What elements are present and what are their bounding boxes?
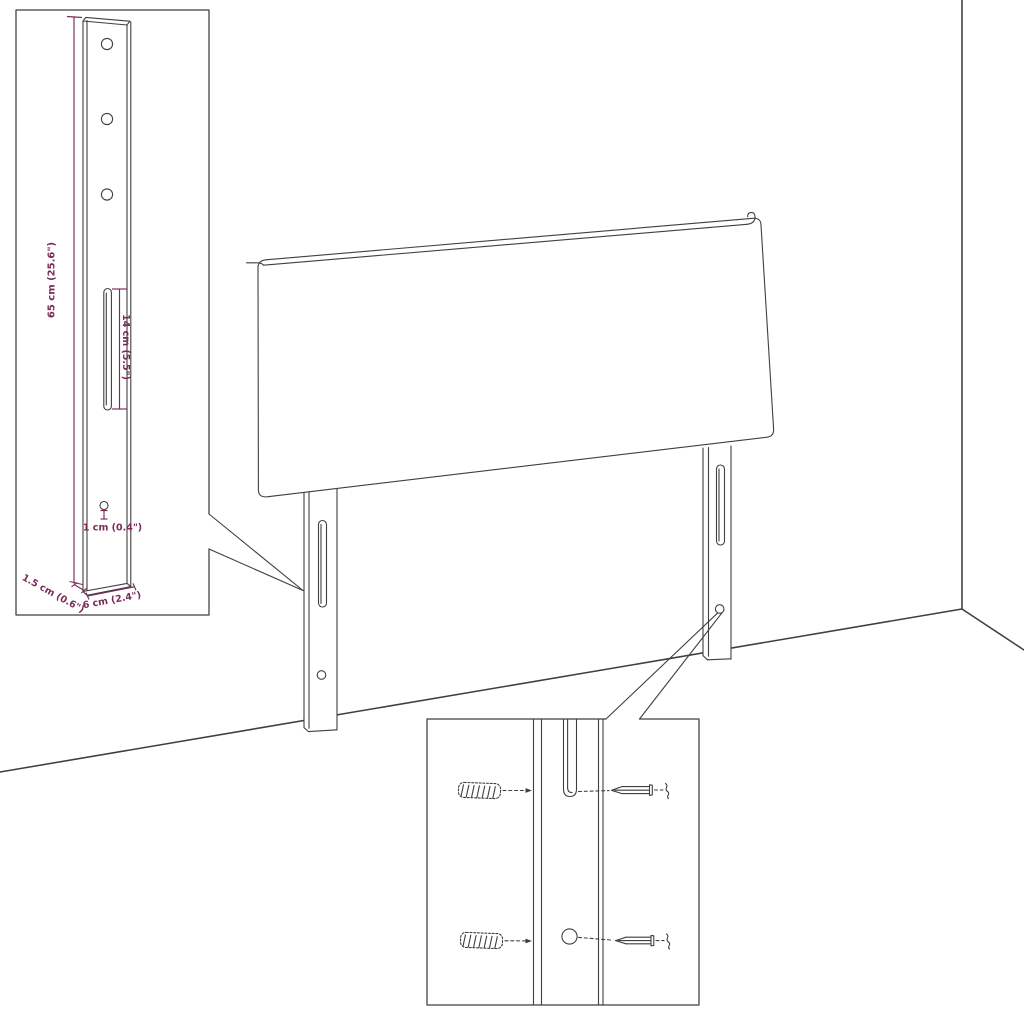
left-leg (304, 480, 338, 732)
screw-bottom (579, 934, 670, 949)
strip-hole (562, 929, 577, 944)
wall-plug-top-ribs (461, 785, 495, 798)
leg-detail-drawing (83, 17, 131, 595)
dim-height-tick-top (67, 17, 82, 18)
dimension-hole-size: 1 cm (0.4") (83, 511, 142, 534)
leg-slot (104, 289, 112, 411)
screw-top-head (650, 785, 653, 796)
dimension-leg-depth: 1.5 cm (0.6") (20, 572, 87, 615)
panel-outline (258, 218, 774, 497)
dimension-label-hole-size: 1 cm (0.4") (83, 523, 142, 534)
wall-plug-bottom-ribs (463, 935, 497, 948)
leg-detail-inset: 65 cm (25.6") 14 cm (5.5") 1 cm (0.4") 1… (16, 10, 209, 616)
dimension-leg-height: 65 cm (25.6") (47, 17, 83, 585)
floor-line-right (962, 609, 1024, 650)
callout-wedge-left (209, 514, 303, 591)
wall-plug-bottom-arrow (526, 939, 533, 944)
dimension-label-leg-height: 65 cm (25.6") (47, 242, 58, 318)
leg-hole-middle (101, 113, 112, 124)
wedge-bottom-right-line (640, 613, 723, 719)
screw-top-thread-symbol (666, 784, 669, 799)
dimension-label-slot-length: 14 cm (5.5") (120, 314, 131, 380)
leg-small-hole (100, 502, 108, 510)
dimension-slot-length: 14 cm (5.5") (112, 289, 131, 409)
dimension-label-leg-depth: 1.5 cm (0.6") (20, 572, 86, 615)
wall-plug-bottom (460, 932, 532, 949)
leg-hole-top (101, 38, 112, 49)
wedge-left-upper-line (209, 514, 303, 591)
strip-slot (564, 720, 577, 797)
floor-line-left (0, 609, 962, 772)
leg-top-face (83, 17, 130, 25)
right-leg (703, 438, 732, 661)
screw-bottom-thread-symbol (667, 934, 670, 949)
screw-top-leader (579, 791, 610, 792)
wall-plug-top (458, 782, 532, 799)
headboard-panel (247, 213, 774, 497)
mounting-leg-strip (534, 720, 604, 1005)
mounting-detail-inset (427, 719, 699, 1005)
strip-slot-inner (568, 720, 572, 793)
screw-bottom-head (651, 935, 654, 945)
leg-hole-lower (101, 189, 112, 200)
screw-bottom-leader (579, 937, 614, 940)
wall-plug-top-arrow (526, 788, 533, 793)
diagram-canvas: 65 cm (25.6") 14 cm (5.5") 1 cm (0.4") 1… (0, 0, 1024, 1024)
wedge-left-lower-line (209, 549, 303, 591)
screw-top (579, 784, 669, 799)
product-dimension-diagram: 65 cm (25.6") 14 cm (5.5") 1 cm (0.4") 1… (0, 0, 1024, 1024)
